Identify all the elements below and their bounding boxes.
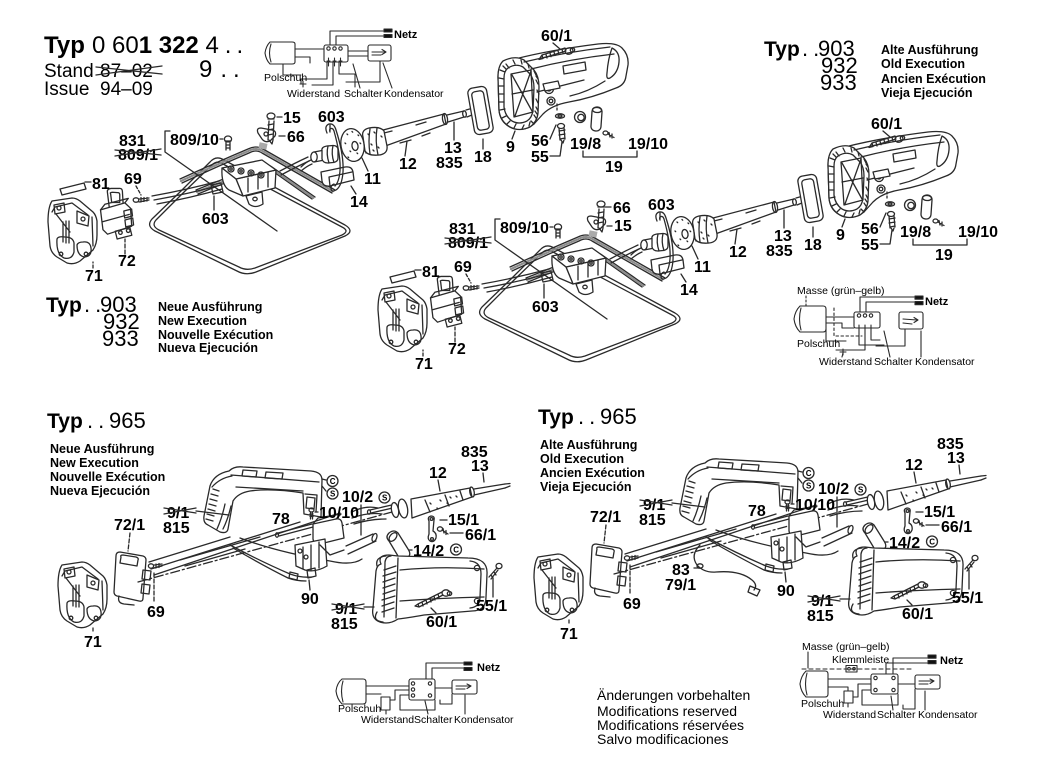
svg-text:933: 933 <box>820 70 857 95</box>
svg-text:Schalter: Schalter <box>877 709 916 721</box>
svg-text:..: .. <box>578 404 595 429</box>
svg-text:Netz: Netz <box>477 662 501 674</box>
svg-text:Vieja Ejecución: Vieja Ejecución <box>540 480 631 494</box>
svg-text:Nueva Ejecución: Nueva Ejecución <box>158 341 258 355</box>
svg-text:79/1: 79/1 <box>665 577 696 594</box>
svg-text:Neue Ausführung: Neue Ausführung <box>50 442 154 456</box>
svg-text:Kondensator: Kondensator <box>384 88 444 100</box>
svg-text:Netz: Netz <box>925 296 949 308</box>
svg-text:Masse (grün–gelb): Masse (grün–gelb) <box>797 285 885 297</box>
svg-text:Vieja Ejecución: Vieja Ejecución <box>881 86 972 100</box>
svg-text:965: 965 <box>600 404 637 429</box>
svg-text:Widerstand: Widerstand <box>819 356 872 368</box>
svg-text:66: 66 <box>613 200 631 217</box>
svg-text:Ancien Exécution: Ancien Exécution <box>540 466 645 480</box>
svg-text:Issue: Issue <box>44 79 89 100</box>
svg-text:15: 15 <box>283 110 301 127</box>
svg-text:Typ: Typ <box>538 406 574 429</box>
svg-text:66: 66 <box>287 129 305 146</box>
svg-text:Old Execution: Old Execution <box>881 57 965 71</box>
svg-text:0 601 322 4..: 0 601 322 4.. <box>92 32 243 59</box>
svg-text:15: 15 <box>614 218 632 235</box>
svg-text:Old Execution: Old Execution <box>540 452 624 466</box>
svg-text:Alte Ausführung: Alte Ausführung <box>540 438 637 452</box>
svg-text:..: .. <box>802 36 819 61</box>
svg-text:Schalter: Schalter <box>414 714 453 726</box>
svg-text:Kondensator: Kondensator <box>454 714 514 726</box>
svg-text:Schalter: Schalter <box>344 88 383 100</box>
svg-text:Nouvelle Exécution: Nouvelle Exécution <box>158 328 273 342</box>
svg-text:Kondensator: Kondensator <box>915 356 975 368</box>
svg-text:Typ: Typ <box>47 410 83 433</box>
svg-text:Typ: Typ <box>764 38 800 61</box>
svg-text:Widerstand: Widerstand <box>361 714 414 726</box>
svg-text:Nueva Ejecución: Nueva Ejecución <box>50 484 150 498</box>
svg-text:Alte Ausführung: Alte Ausführung <box>881 43 978 57</box>
svg-text:9..: 9.. <box>199 56 240 83</box>
svg-text:Schalter: Schalter <box>874 356 913 368</box>
svg-text:..: .. <box>87 408 104 433</box>
svg-text:Netz: Netz <box>394 29 418 41</box>
svg-text:Widerstand: Widerstand <box>287 88 340 100</box>
svg-text:Kondensator: Kondensator <box>918 709 978 721</box>
svg-text:Netz: Netz <box>940 655 964 667</box>
svg-text:965: 965 <box>109 408 146 433</box>
svg-text:Typ: Typ <box>46 294 82 317</box>
svg-text:Nouvelle Exécution: Nouvelle Exécution <box>50 470 165 484</box>
svg-text:Typ: Typ <box>44 32 85 59</box>
svg-text:Salvo modificaciones: Salvo modificaciones <box>597 731 729 747</box>
svg-text:Änderungen vorbehalten: Änderungen vorbehalten <box>597 687 750 703</box>
svg-text:New Execution: New Execution <box>158 314 247 328</box>
svg-text:94–09: 94–09 <box>100 79 153 100</box>
svg-text:New Execution: New Execution <box>50 456 139 470</box>
svg-text:Polschuh: Polschuh <box>797 338 840 350</box>
svg-text:Ancien Exécution: Ancien Exécution <box>881 72 986 86</box>
svg-text:..: .. <box>84 292 101 317</box>
svg-text:Polschuh: Polschuh <box>264 72 307 84</box>
svg-text:Widerstand: Widerstand <box>823 709 876 721</box>
svg-text:Klemmleiste: Klemmleiste <box>832 654 889 666</box>
svg-text:933: 933 <box>102 326 139 351</box>
svg-text:Masse (grün–gelb): Masse (grün–gelb) <box>802 641 890 653</box>
svg-text:Neue Ausführung: Neue Ausführung <box>158 300 262 314</box>
